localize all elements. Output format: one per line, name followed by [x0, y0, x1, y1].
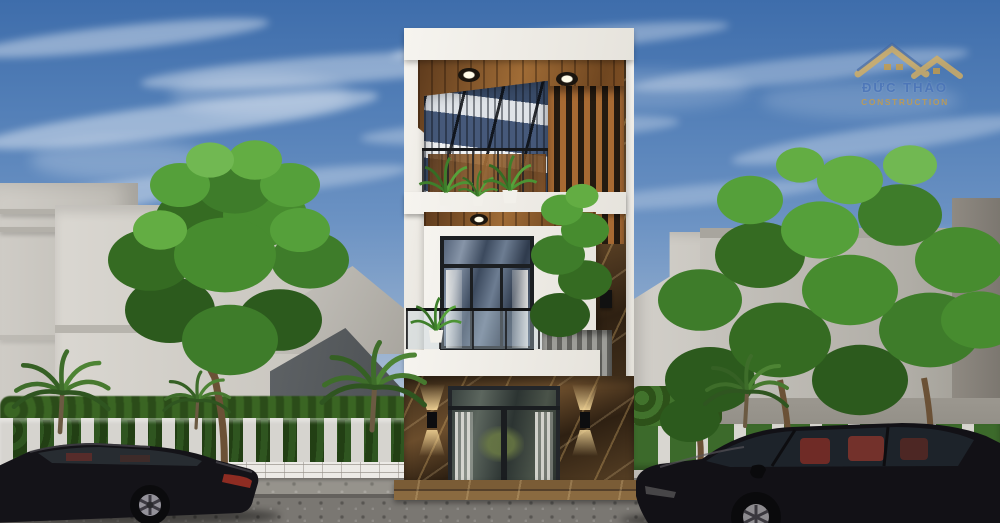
architectural-render: ĐỨC THẢO CONSTRUCTION — [0, 0, 1000, 523]
wall-sconce-right — [580, 412, 590, 428]
roofs-logo-icon — [840, 40, 970, 82]
construction-watermark: ĐỨC THẢO CONSTRUCTION — [840, 40, 970, 110]
brand-tagline: CONSTRUCTION — [840, 97, 970, 107]
black-sedan-left — [0, 443, 280, 523]
black-coupe-right — [620, 423, 1000, 523]
wall-sconce-left — [427, 412, 437, 428]
brand-name: ĐỨC THẢO — [840, 80, 970, 95]
